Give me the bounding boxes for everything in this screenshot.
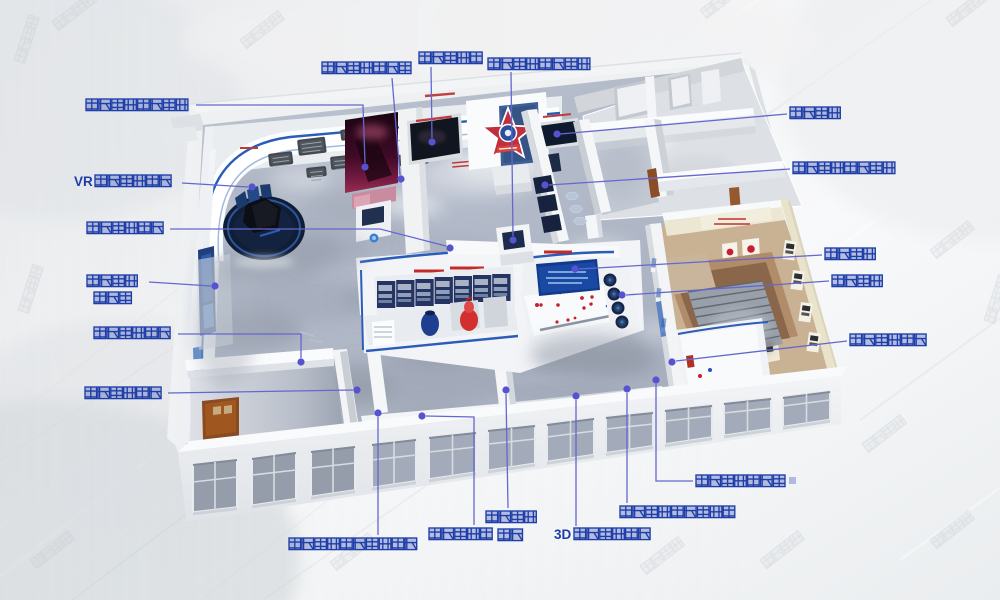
svg-text:3D: 3D xyxy=(554,527,572,542)
svg-text:VR: VR xyxy=(74,174,93,189)
